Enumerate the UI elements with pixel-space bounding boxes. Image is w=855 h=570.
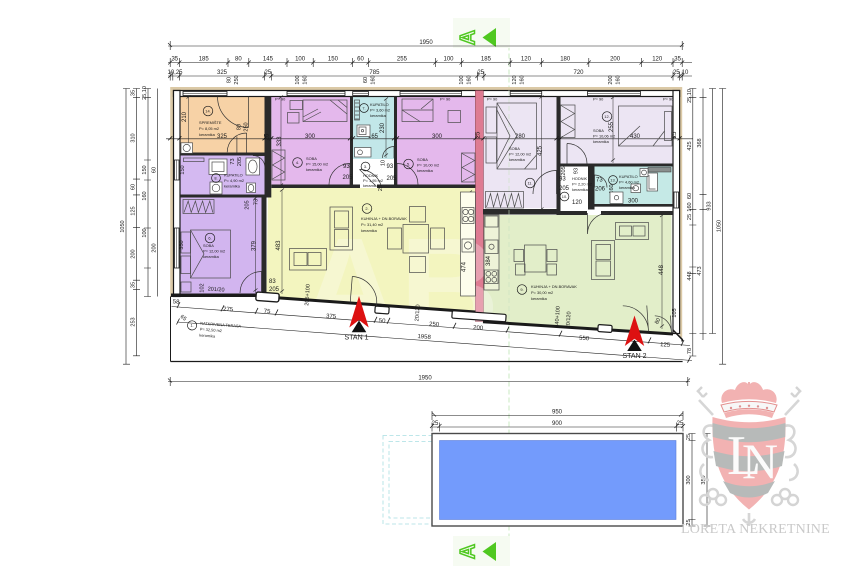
svg-text:SOBA: SOBA xyxy=(593,128,604,133)
svg-text:73: 73 xyxy=(254,199,260,205)
svg-text:80: 80 xyxy=(237,124,243,130)
svg-text:SOBA: SOBA xyxy=(203,243,214,248)
svg-text:206: 206 xyxy=(595,187,606,193)
svg-text:120: 120 xyxy=(652,57,663,63)
svg-text:80: 80 xyxy=(226,77,232,83)
svg-text:230: 230 xyxy=(380,122,386,133)
svg-text:65: 65 xyxy=(179,314,188,323)
svg-text:205: 205 xyxy=(269,287,280,293)
svg-text:KUHINJA + DN.BORAVAK: KUHINJA + DN.BORAVAK xyxy=(531,284,577,289)
svg-text:430: 430 xyxy=(630,134,641,140)
svg-text:150: 150 xyxy=(142,165,148,174)
svg-text:KUPATILO: KUPATILO xyxy=(224,173,243,178)
svg-text:keramika: keramika xyxy=(361,228,378,233)
svg-text:35: 35 xyxy=(131,90,137,96)
svg-text:253: 253 xyxy=(131,317,137,326)
svg-text:100: 100 xyxy=(295,57,306,63)
svg-text:keramika: keramika xyxy=(593,139,610,144)
svg-text:5.: 5. xyxy=(407,162,410,167)
svg-text:1.: 1. xyxy=(190,323,194,328)
svg-text:145: 145 xyxy=(263,57,274,63)
svg-text:300: 300 xyxy=(432,134,443,140)
svg-text:1050: 1050 xyxy=(120,220,126,232)
svg-text:473: 473 xyxy=(697,266,703,275)
svg-text:160: 160 xyxy=(687,202,693,211)
svg-text:SOBA: SOBA xyxy=(417,157,428,162)
svg-text:100: 100 xyxy=(443,57,454,63)
svg-text:10.: 10. xyxy=(562,194,567,199)
svg-text:SOBA: SOBA xyxy=(509,146,520,151)
svg-text:210: 210 xyxy=(182,111,188,122)
svg-text:160: 160 xyxy=(520,75,526,84)
svg-text:300: 300 xyxy=(305,134,316,140)
svg-text:25,10: 25,10 xyxy=(142,86,148,100)
svg-text:keramika: keramika xyxy=(199,332,216,338)
svg-text:379: 379 xyxy=(252,240,258,251)
svg-text:12.: 12. xyxy=(604,114,609,119)
svg-text:SOBA: SOBA xyxy=(306,156,317,161)
svg-text:P= 30,00 m2: P= 30,00 m2 xyxy=(531,290,553,295)
svg-text:83: 83 xyxy=(269,279,276,285)
svg-text:25: 25 xyxy=(475,131,481,138)
svg-text:keramika: keramika xyxy=(531,296,548,301)
svg-text:25: 25 xyxy=(477,70,484,76)
svg-text:93: 93 xyxy=(574,168,580,174)
svg-text:205: 205 xyxy=(561,166,567,175)
svg-text:448: 448 xyxy=(659,264,665,275)
svg-text:785: 785 xyxy=(369,70,380,76)
svg-text:250: 250 xyxy=(234,75,240,84)
svg-text:25: 25 xyxy=(265,133,271,140)
svg-text:900: 900 xyxy=(552,421,563,427)
svg-text:STAN 2: STAN 2 xyxy=(623,353,647,360)
svg-text:8.: 8. xyxy=(214,176,217,181)
svg-text:KUPATILO: KUPATILO xyxy=(619,174,638,179)
svg-text:75: 75 xyxy=(264,309,272,316)
svg-text:20/120: 20/120 xyxy=(414,304,421,321)
svg-text:P= 90: P= 90 xyxy=(275,97,286,102)
svg-text:P= 4,90 m2: P= 4,90 m2 xyxy=(224,178,244,183)
svg-text:105: 105 xyxy=(672,308,678,317)
svg-text:keramika: keramika xyxy=(224,184,241,189)
svg-text:9.: 9. xyxy=(520,287,523,292)
svg-text:3.: 3. xyxy=(364,164,367,169)
svg-text:20/120: 20/120 xyxy=(565,311,572,328)
svg-text:25: 25 xyxy=(378,185,384,191)
svg-text:keramika: keramika xyxy=(203,254,220,259)
svg-text:933: 933 xyxy=(707,201,713,210)
svg-text:11.: 11. xyxy=(527,181,532,186)
svg-text:310: 310 xyxy=(131,133,137,142)
svg-text:10: 10 xyxy=(682,70,689,76)
svg-text:60: 60 xyxy=(357,57,364,63)
svg-text:P= 4,60 m2: P= 4,60 m2 xyxy=(619,180,639,185)
svg-text:368: 368 xyxy=(697,138,703,147)
svg-text:25: 25 xyxy=(673,70,680,76)
svg-text:384: 384 xyxy=(486,255,492,266)
svg-text:102: 102 xyxy=(200,283,206,292)
svg-text:160: 160 xyxy=(370,75,376,84)
svg-text:35: 35 xyxy=(674,57,681,63)
svg-text:10: 10 xyxy=(381,160,387,166)
svg-text:100: 100 xyxy=(459,75,465,84)
svg-text:325: 325 xyxy=(217,70,228,76)
svg-text:100: 100 xyxy=(142,228,148,237)
svg-text:25: 25 xyxy=(265,70,272,76)
svg-text:150: 150 xyxy=(328,57,339,63)
svg-text:333: 333 xyxy=(277,136,283,147)
svg-text:keramika: keramika xyxy=(306,167,323,172)
svg-text:205: 205 xyxy=(342,175,353,181)
svg-text:201/20: 201/20 xyxy=(207,286,224,293)
svg-text:4.: 4. xyxy=(296,160,299,165)
svg-text:950: 950 xyxy=(552,410,563,416)
svg-text:1950: 1950 xyxy=(418,376,432,382)
svg-text:P= 31,40 m2: P= 31,40 m2 xyxy=(361,222,383,227)
svg-text:60: 60 xyxy=(152,167,158,173)
svg-text:160: 160 xyxy=(467,75,473,84)
svg-text:300: 300 xyxy=(628,199,639,205)
svg-text:205: 205 xyxy=(387,176,398,182)
svg-text:60: 60 xyxy=(687,193,693,199)
svg-text:93: 93 xyxy=(559,177,566,183)
svg-text:483: 483 xyxy=(276,240,282,251)
svg-text:200: 200 xyxy=(473,325,484,332)
svg-text:180: 180 xyxy=(560,57,571,63)
svg-text:25: 25 xyxy=(672,131,678,138)
svg-text:200: 200 xyxy=(610,57,621,63)
svg-text:275: 275 xyxy=(223,307,234,314)
svg-text:120: 120 xyxy=(512,75,518,84)
svg-text:35: 35 xyxy=(131,282,137,288)
svg-text:P= 90: P= 90 xyxy=(593,97,604,102)
svg-text:keramika: keramika xyxy=(509,157,526,162)
svg-text:160: 160 xyxy=(303,75,309,84)
svg-text:P= 10,06 m2: P= 10,06 m2 xyxy=(593,134,615,139)
svg-text:205: 205 xyxy=(237,157,243,166)
svg-text:474: 474 xyxy=(462,261,468,272)
svg-text:LORETA NEKRETNINE: LORETA NEKRETNINE xyxy=(681,522,830,537)
svg-text:185: 185 xyxy=(481,57,492,63)
svg-text:80: 80 xyxy=(235,57,242,63)
svg-text:25: 25 xyxy=(432,421,439,427)
svg-text:A: A xyxy=(457,30,480,45)
svg-text:keramika: keramika xyxy=(417,168,434,173)
svg-text:120: 120 xyxy=(521,57,532,63)
svg-text:P= 15,00 m2: P= 15,00 m2 xyxy=(306,162,328,167)
svg-text:720: 720 xyxy=(573,70,584,76)
svg-text:120: 120 xyxy=(572,200,583,206)
svg-text:P= 8,05 m2: P= 8,05 m2 xyxy=(199,126,219,131)
svg-text:14.: 14. xyxy=(205,109,210,114)
svg-text:1958: 1958 xyxy=(417,334,431,341)
svg-text:1950: 1950 xyxy=(419,40,433,46)
svg-text:448: 448 xyxy=(687,271,693,280)
svg-text:P= 12,00 m2: P= 12,00 m2 xyxy=(509,152,531,157)
svg-text:250: 250 xyxy=(244,122,250,131)
svg-text:150: 150 xyxy=(180,165,186,174)
svg-text:P= 90: P= 90 xyxy=(663,97,674,102)
svg-text:6.: 6. xyxy=(208,236,211,241)
svg-text:100: 100 xyxy=(295,75,301,84)
svg-text:STAN 1: STAN 1 xyxy=(345,335,369,342)
svg-text:425: 425 xyxy=(687,141,693,150)
svg-text:A: A xyxy=(457,544,480,559)
svg-text:35: 35 xyxy=(171,57,178,63)
svg-text:60: 60 xyxy=(363,77,369,83)
svg-text:N: N xyxy=(742,433,778,489)
svg-text:13.: 13. xyxy=(610,178,615,183)
svg-text:KUPATILO: KUPATILO xyxy=(370,102,389,107)
svg-text:keramika: keramika xyxy=(199,132,216,137)
svg-text:375: 375 xyxy=(326,314,337,321)
svg-text:25,10: 25,10 xyxy=(687,89,693,103)
svg-text:160: 160 xyxy=(615,75,621,84)
svg-text:P= 90: P= 90 xyxy=(440,97,451,102)
svg-text:425: 425 xyxy=(538,145,544,156)
svg-text:KUHINJA + DN.BORAVAK: KUHINJA + DN.BORAVAK xyxy=(361,216,407,221)
svg-text:SPREMIŠTE: SPREMIŠTE xyxy=(199,120,222,125)
svg-text:185: 185 xyxy=(199,57,210,63)
svg-text:25: 25 xyxy=(686,434,692,440)
svg-text:50: 50 xyxy=(379,318,387,325)
svg-text:7.: 7. xyxy=(362,106,365,111)
svg-text:160: 160 xyxy=(142,191,148,200)
svg-text:keramika: keramika xyxy=(370,113,387,118)
svg-text:93: 93 xyxy=(343,164,350,170)
svg-text:60: 60 xyxy=(131,184,137,190)
svg-text:300: 300 xyxy=(686,475,692,484)
svg-text:325: 325 xyxy=(217,134,228,140)
svg-text:550: 550 xyxy=(579,336,590,343)
svg-text:125: 125 xyxy=(131,206,137,215)
svg-text:P= 10,00 m2: P= 10,00 m2 xyxy=(417,163,439,168)
svg-text:P= 3,60 m2: P= 3,60 m2 xyxy=(370,108,390,113)
svg-text:255: 255 xyxy=(397,57,408,63)
svg-text:25: 25 xyxy=(677,421,684,427)
svg-text:350: 350 xyxy=(179,240,185,249)
svg-text:200: 200 xyxy=(131,249,137,258)
svg-text:P= 12,00 m2: P= 12,00 m2 xyxy=(203,249,225,254)
svg-text:73: 73 xyxy=(230,158,236,164)
svg-text:73: 73 xyxy=(596,178,603,184)
svg-text:250: 250 xyxy=(429,322,440,329)
svg-text:10,25: 10,25 xyxy=(167,70,183,76)
svg-text:93: 93 xyxy=(387,164,394,170)
svg-text:keramika: keramika xyxy=(572,187,589,192)
svg-text:200: 200 xyxy=(608,75,614,84)
svg-text:125: 125 xyxy=(660,342,671,349)
svg-text:HODNIK: HODNIK xyxy=(572,176,588,181)
svg-text:1050: 1050 xyxy=(717,220,723,232)
svg-text:P= 90: P= 90 xyxy=(487,97,498,102)
svg-text:200: 200 xyxy=(152,243,158,252)
svg-text:58: 58 xyxy=(173,299,181,306)
svg-text:205: 205 xyxy=(245,200,251,209)
svg-text:2.: 2. xyxy=(365,206,368,211)
svg-text:255: 255 xyxy=(609,121,615,132)
svg-text:25: 25 xyxy=(687,214,693,220)
svg-text:205: 205 xyxy=(559,186,570,192)
svg-text:P= 2,20 m2: P= 2,20 m2 xyxy=(572,182,592,187)
svg-text:78: 78 xyxy=(687,348,693,354)
svg-text:keramika: keramika xyxy=(619,185,636,190)
